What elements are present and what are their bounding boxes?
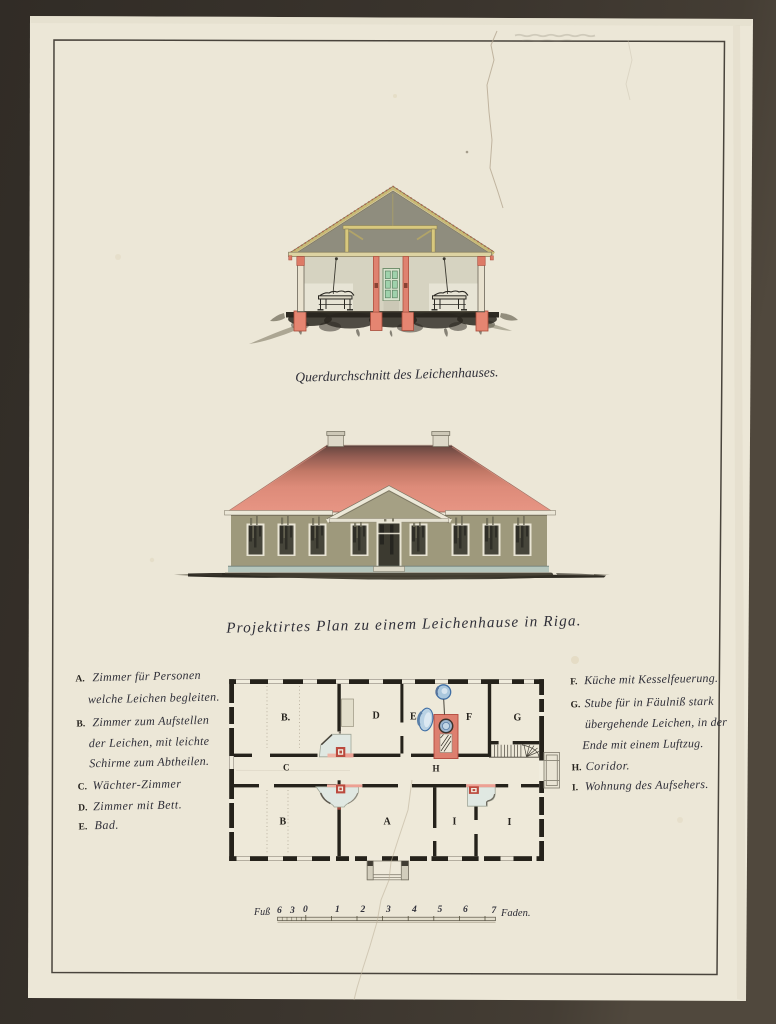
- svg-text:B.: B.: [281, 713, 291, 724]
- svg-text:6: 6: [463, 905, 468, 915]
- svg-text:Wächter-Zimmer: Wächter-Zimmer: [93, 776, 182, 792]
- svg-text:0: 0: [303, 905, 308, 915]
- svg-text:Stube für in Fäulniß stark: Stube für in Fäulniß stark: [584, 694, 714, 710]
- svg-text:6: 6: [277, 906, 282, 916]
- svg-text:B.: B.: [76, 719, 85, 729]
- svg-text:I.: I.: [572, 783, 578, 793]
- svg-text:E: E: [410, 712, 417, 723]
- svg-text:Ende mit einem Luftzug.: Ende mit einem Luftzug.: [581, 736, 703, 752]
- svg-text:H: H: [433, 764, 440, 774]
- svg-text:der Leichen, mit leichte: der Leichen, mit leichte: [89, 734, 210, 751]
- svg-text:Bad.: Bad.: [94, 818, 119, 833]
- svg-text:I: I: [453, 817, 457, 828]
- svg-text:G.: G.: [570, 700, 580, 710]
- svg-text:B: B: [280, 817, 287, 828]
- svg-text:1: 1: [335, 905, 340, 915]
- svg-text:D: D: [373, 711, 380, 722]
- svg-text:3: 3: [385, 905, 391, 915]
- svg-text:Faden.: Faden.: [500, 908, 530, 919]
- svg-text:C: C: [283, 763, 290, 773]
- svg-text:H.: H.: [572, 763, 582, 773]
- svg-text:Schirme zum Abtheilen.: Schirme zum Abtheilen.: [89, 754, 209, 771]
- svg-text:übergehende Leichen, in der: übergehende Leichen, in der: [585, 715, 728, 731]
- svg-text:C.: C.: [78, 782, 87, 792]
- svg-text:A: A: [384, 817, 392, 828]
- svg-text:I: I: [508, 817, 512, 828]
- svg-text:Küche mit Kesselfeuerung.: Küche mit Kesselfeuerung.: [583, 671, 718, 687]
- svg-text:D.: D.: [78, 803, 87, 813]
- svg-text:Wohnung des Aufsehers.: Wohnung des Aufsehers.: [585, 777, 709, 793]
- svg-text:2: 2: [360, 905, 366, 915]
- svg-text:4: 4: [411, 905, 417, 915]
- svg-text:E.: E.: [79, 822, 88, 832]
- svg-text:Zimmer mit Bett.: Zimmer mit Bett.: [93, 797, 182, 813]
- svg-text:Zimmer für Personen: Zimmer für Personen: [92, 668, 201, 684]
- svg-text:G: G: [514, 713, 522, 724]
- svg-text:3: 3: [289, 906, 295, 916]
- svg-text:F.: F.: [570, 677, 577, 687]
- svg-text:Fuß: Fuß: [253, 907, 270, 918]
- svg-text:A.: A.: [75, 674, 84, 684]
- svg-text:F: F: [466, 712, 472, 723]
- svg-text:Coridor.: Coridor.: [585, 758, 630, 773]
- svg-text:5: 5: [438, 905, 443, 915]
- svg-text:welche Leichen begleiten.: welche Leichen begleiten.: [88, 690, 220, 707]
- svg-text:Zimmer zum Aufstellen: Zimmer zum Aufstellen: [92, 713, 209, 729]
